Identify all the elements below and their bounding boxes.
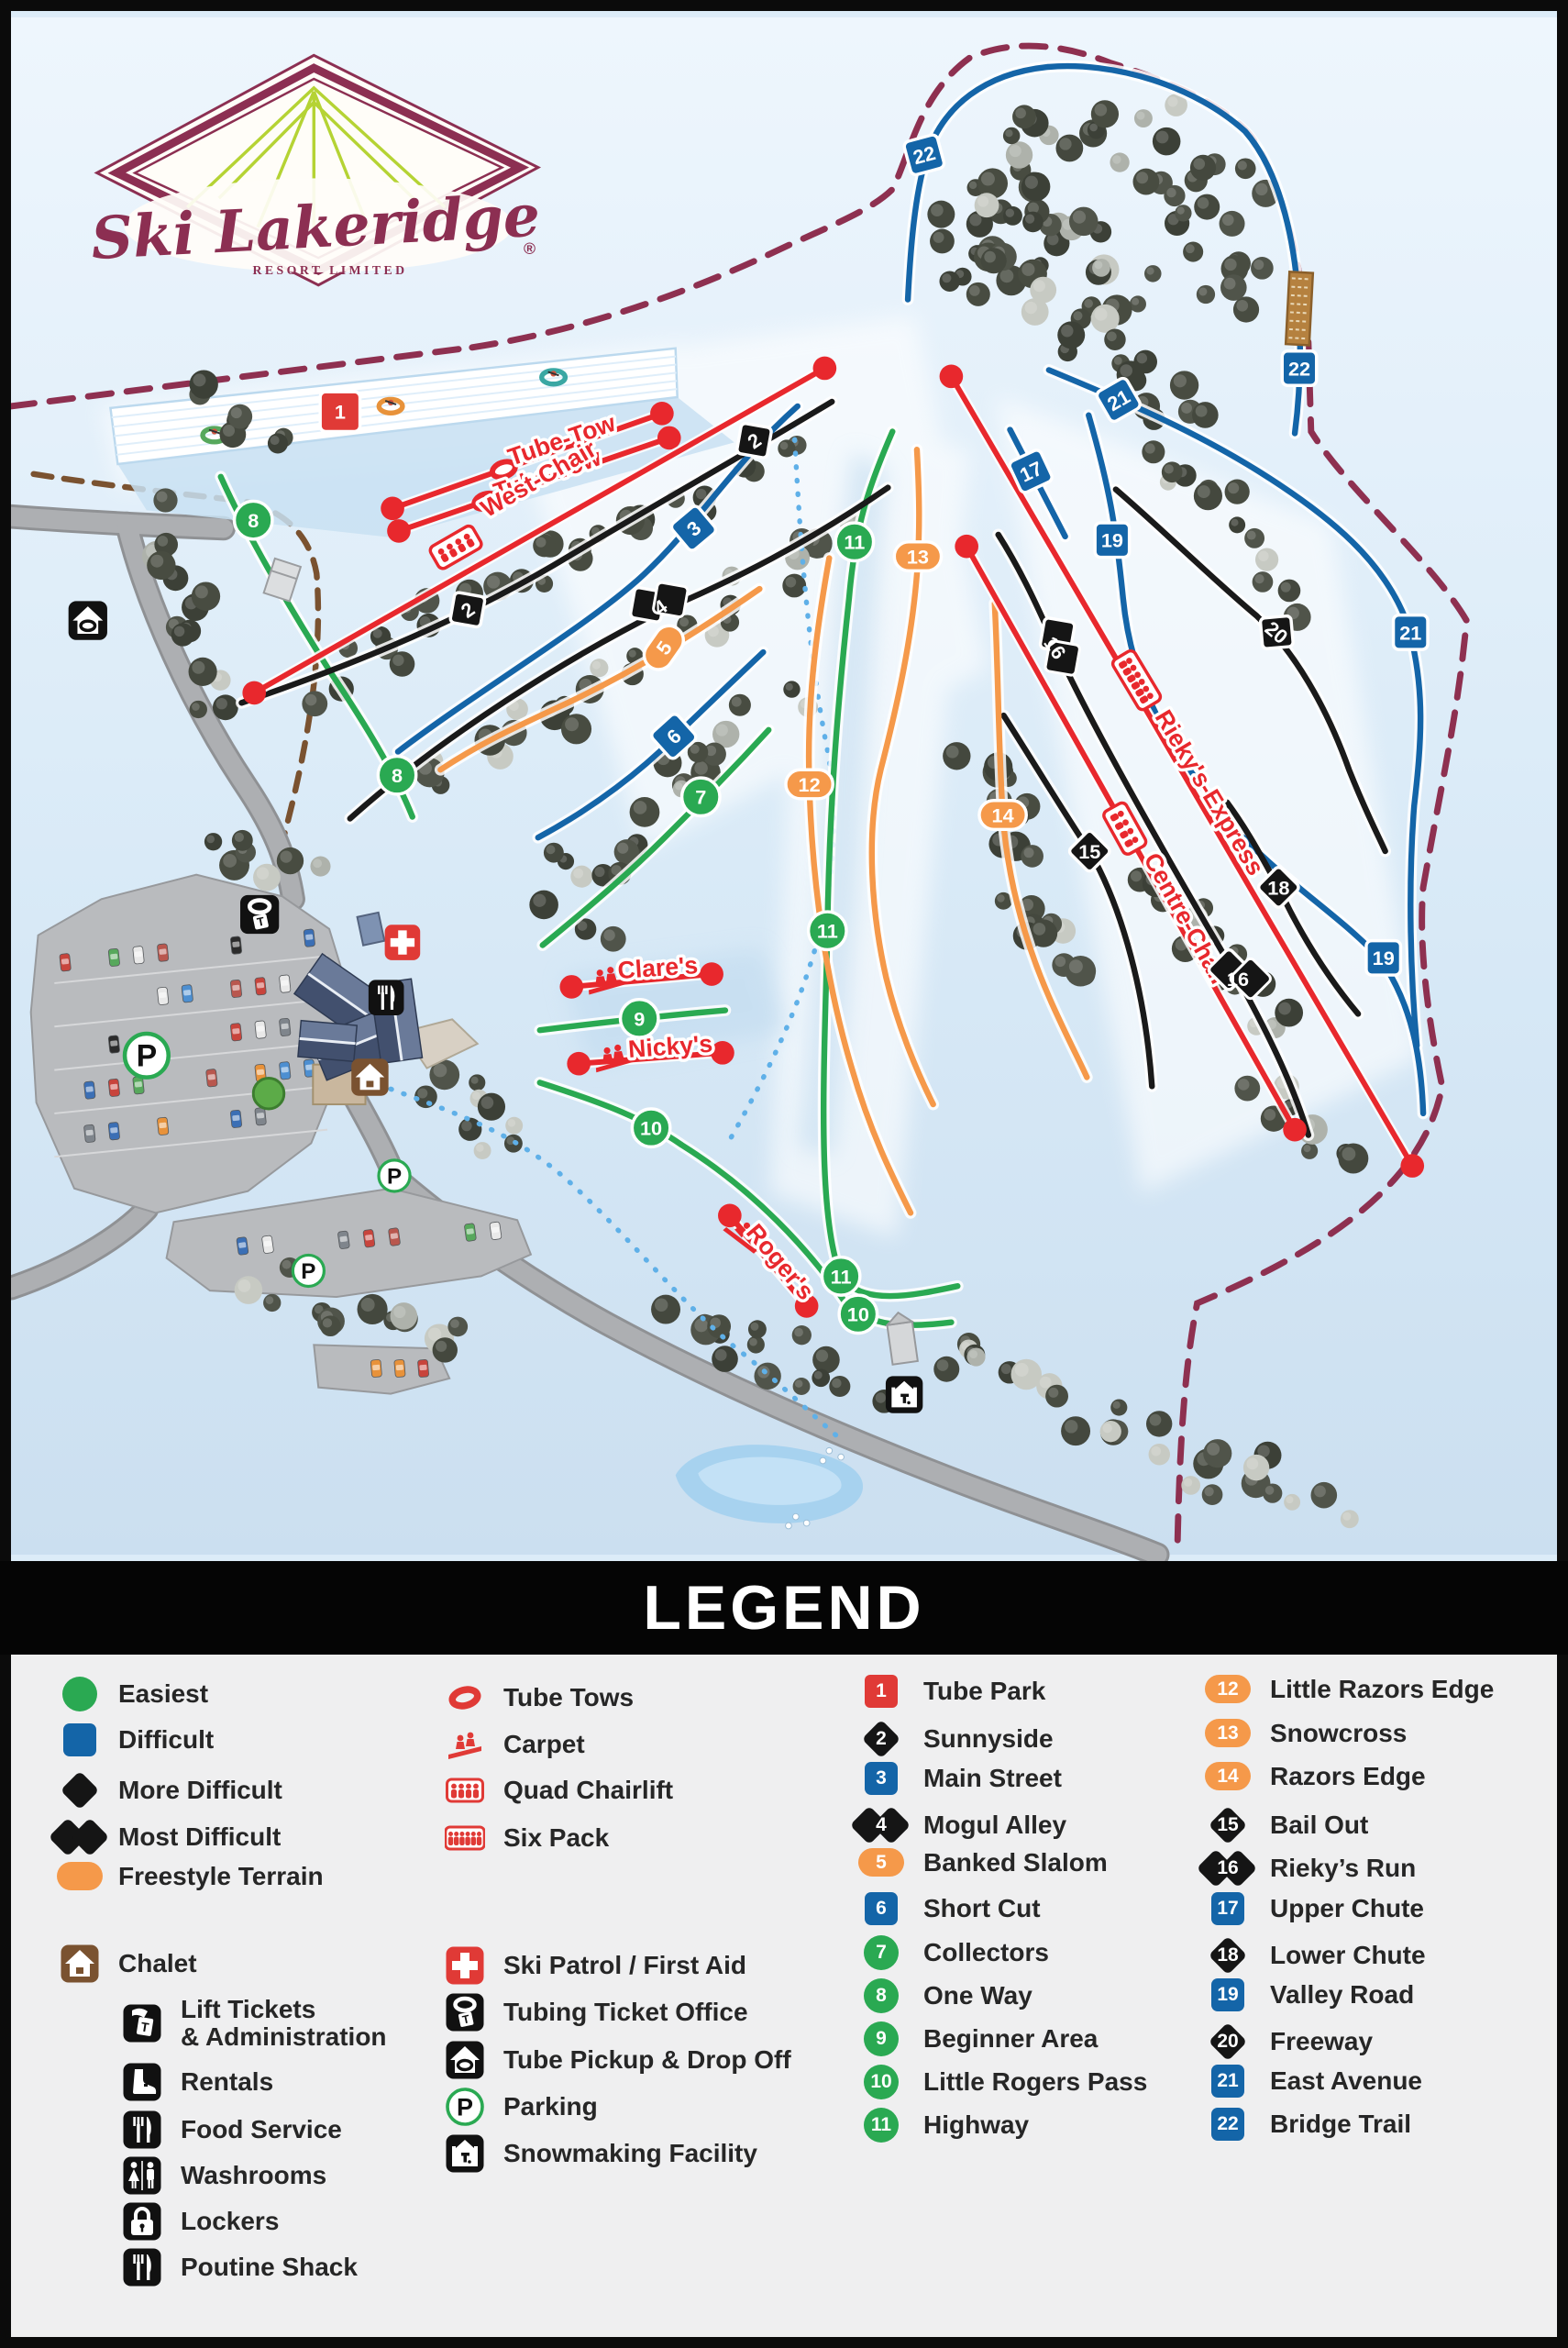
legend-item-tube-pickup-drop-off: Tube Pickup & Drop Off xyxy=(442,2040,791,2080)
svg-text:1: 1 xyxy=(335,401,346,424)
legend-item-easiest: Easiest xyxy=(57,1677,208,1711)
legend-banner: LEGEND xyxy=(0,1561,1568,1655)
legend-item-trail-15: 15 Bail Out xyxy=(1201,1805,1368,1845)
legend-item-most-difficult: Most Difficult xyxy=(57,1817,281,1857)
svg-text:11: 11 xyxy=(817,920,838,943)
legend-item-freestyle-terrain-label: Freestyle Terrain xyxy=(118,1863,324,1890)
legend-item-trail-1-icon: 1 xyxy=(855,1675,908,1708)
svg-text:10: 10 xyxy=(640,1117,662,1140)
trail-marker-12: 12 xyxy=(786,770,833,799)
trail-marker-22: 22 xyxy=(1282,351,1316,385)
svg-text:13: 13 xyxy=(907,545,929,568)
legend-item-trail-15-icon: 15 xyxy=(1201,1805,1254,1845)
legend-item-snowmaking-facility-icon xyxy=(442,2133,488,2174)
legend-item-easiest-icon xyxy=(57,1677,103,1711)
legend-item-trail-17: 17 Upper Chute xyxy=(1201,1892,1424,1925)
legend-item-freestyle-terrain: Freestyle Terrain xyxy=(57,1862,324,1890)
legend-item-difficult-icon xyxy=(57,1723,103,1756)
legend-item-trail-12: 12 Little Razors Edge xyxy=(1201,1675,1494,1703)
legend-item-trail-9: 9 Beginner Area xyxy=(855,2021,1098,2056)
legend-item-trail-5-icon: 5 xyxy=(855,1848,908,1877)
legend-item-trail-10-label: Little Rogers Pass xyxy=(923,2068,1147,2096)
legend-item-rentals-label: Rentals xyxy=(181,2068,273,2096)
trail-marker-19: 19 xyxy=(1095,523,1129,557)
legend-item-trail-14: 14 Razors Edge xyxy=(1201,1762,1426,1790)
legend-item-chalet-icon xyxy=(57,1944,103,1984)
legend-item-trail-20-label: Freeway xyxy=(1270,2028,1373,2055)
legend-item-trail-12-label: Little Razors Edge xyxy=(1270,1676,1494,1703)
svg-text:P: P xyxy=(387,1164,402,1189)
svg-text:10: 10 xyxy=(847,1303,869,1326)
svg-text:P: P xyxy=(137,1039,158,1074)
legend-item-trail-19: 19 Valley Road xyxy=(1201,1978,1414,2011)
legend-item-trail-21-icon: 21 xyxy=(1201,2065,1254,2098)
legend-item-parking-icon: P xyxy=(442,2087,488,2127)
svg-text:9: 9 xyxy=(634,1007,645,1030)
legend-item-trail-5: 5 Banked Slalom xyxy=(855,1848,1108,1877)
legend-item-trail-4: 4 Mogul Alley xyxy=(855,1805,1066,1845)
svg-text:P: P xyxy=(301,1259,315,1284)
legend-item-trail-7-icon: 7 xyxy=(855,1935,908,1970)
legend-item-parking-label: Parking xyxy=(503,2093,598,2121)
legend-item-trail-16-label: Rieky’s Run xyxy=(1270,1855,1416,1882)
legend-item-more-difficult: More Difficult xyxy=(57,1770,282,1811)
legend-item-trail-14-icon: 14 xyxy=(1201,1762,1254,1790)
legend-item-tube-tows: Tube Tows xyxy=(442,1678,634,1718)
legend-item-trail-21-label: East Avenue xyxy=(1270,2067,1422,2095)
legend-item-trail-13: 13 Snowcross xyxy=(1201,1719,1407,1747)
legend-item-trail-6-icon: 6 xyxy=(855,1892,908,1925)
logo-subtitle: RESORT LIMITED xyxy=(252,263,407,277)
trail-marker-19: 19 xyxy=(1366,941,1400,975)
food-map-icon xyxy=(369,980,404,1015)
legend-item-trail-18-icon: 18 xyxy=(1201,1935,1254,1976)
legend-title: LEGEND xyxy=(643,1572,924,1644)
legend-item-trail-2-icon: 2 xyxy=(855,1719,908,1759)
svg-text:19: 19 xyxy=(1373,947,1395,969)
trail-marker-8: 8 xyxy=(378,756,415,793)
svg-text:18: 18 xyxy=(1267,876,1289,899)
legend-item-six-pack-label: Six Pack xyxy=(503,1824,609,1852)
legend-item-ski-patrol-first-aid-icon xyxy=(442,1945,488,1986)
legend-item-trail-1-label: Tube Park xyxy=(923,1678,1045,1705)
legend-item-poutine-shack-label: Poutine Shack xyxy=(181,2254,358,2281)
legend-item-trail-16: 16 Rieky’s Run xyxy=(1201,1848,1416,1888)
logo-registered: ® xyxy=(524,239,536,258)
legend-item-trail-13-icon: 13 xyxy=(1201,1719,1254,1747)
trail-map-poster: Tube-TowTube-TowWest-ChairRieky's-Expres… xyxy=(0,0,1568,2348)
svg-text:12: 12 xyxy=(799,773,821,796)
trail-marker-8: 8 xyxy=(235,501,272,538)
svg-text:11: 11 xyxy=(844,531,865,554)
legend-item-trail-22-icon: 22 xyxy=(1201,2108,1254,2141)
legend-item-trail-19-icon: 19 xyxy=(1201,1978,1254,2011)
legend-item-trail-21: 21 East Avenue xyxy=(1201,2065,1422,2098)
legend-item-easiest-label: Easiest xyxy=(118,1680,208,1708)
legend-item-trail-9-icon: 9 xyxy=(855,2021,908,2056)
trail-marker-7: 7 xyxy=(682,778,720,815)
legend-item-trail-8-icon: 8 xyxy=(855,1978,908,2013)
ski-patrol-map-icon xyxy=(385,925,421,960)
legend-item-rentals-icon xyxy=(119,2062,165,2102)
legend-item-ski-patrol-first-aid: Ski Patrol / First Aid xyxy=(442,1945,746,1986)
legend-item-tube-pickup-drop-off-icon xyxy=(442,2040,488,2080)
legend-item-trail-11: 11 Highway xyxy=(855,2108,1029,2143)
legend-item-trail-20-icon: 20 xyxy=(1201,2021,1254,2062)
legend-item-lockers-icon xyxy=(119,2201,165,2242)
legend-item-trail-20: 20 Freeway xyxy=(1201,2021,1373,2062)
legend-item-trail-16-icon: 16 xyxy=(1201,1848,1254,1888)
legend-item-trail-22-label: Bridge Trail xyxy=(1270,2110,1411,2138)
legend-item-ski-patrol-first-aid-label: Ski Patrol / First Aid xyxy=(503,1952,746,1979)
legend-item-trail-5-label: Banked Slalom xyxy=(923,1849,1108,1877)
legend-item-trail-10-icon: 10 xyxy=(855,2065,908,2099)
legend-item-six-pack-icon xyxy=(442,1818,488,1858)
svg-text:15: 15 xyxy=(1078,840,1100,863)
legend-item-trail-1: 1 Tube Park xyxy=(855,1675,1045,1708)
legend-item-rentals: Rentals xyxy=(119,2062,273,2102)
svg-text:16: 16 xyxy=(1227,968,1249,991)
legend-item-trail-4-icon: 4 xyxy=(855,1805,908,1845)
trail-map: Tube-TowTube-TowWest-ChairRieky's-Expres… xyxy=(11,11,1557,1561)
legend-item-quad-chairlift-label: Quad Chairlift xyxy=(503,1777,673,1804)
legend-item-freestyle-terrain-icon xyxy=(57,1862,103,1890)
legend-item-trail-15-label: Bail Out xyxy=(1270,1811,1368,1839)
legend-item-trail-6: 6 Short Cut xyxy=(855,1892,1041,1925)
svg-text:7: 7 xyxy=(695,786,706,809)
legend-item-washrooms-icon xyxy=(119,2155,165,2196)
chalet-map-icon xyxy=(351,1058,388,1095)
legend-item-trail-10: 10 Little Rogers Pass xyxy=(855,2065,1147,2099)
legend-item-quad-chairlift-icon xyxy=(442,1770,488,1811)
legend-item-tube-tows-label: Tube Tows xyxy=(503,1684,634,1711)
legend-item-snowmaking-facility-label: Snowmaking Facility xyxy=(503,2140,757,2167)
legend-item-parking: P Parking xyxy=(442,2087,598,2127)
legend-item-poutine-shack: Poutine Shack xyxy=(119,2247,358,2287)
bridge-icon xyxy=(1286,271,1313,345)
svg-text:19: 19 xyxy=(1101,529,1123,552)
legend-item-most-difficult-icon xyxy=(57,1817,103,1857)
trail-marker-14: 14 xyxy=(979,801,1026,830)
legend-item-washrooms: Washrooms xyxy=(119,2155,326,2196)
svg-text:8: 8 xyxy=(392,764,403,787)
legend-item-trail-18: 18 Lower Chute xyxy=(1201,1935,1426,1976)
legend-item-trail-11-label: Highway xyxy=(923,2111,1029,2139)
trail-marker-10: 10 xyxy=(632,1109,669,1146)
legend-item-trail-8: 8 One Way xyxy=(855,1978,1032,2013)
legend-item-trail-17-icon: 17 xyxy=(1201,1892,1254,1925)
legend-item-more-difficult-icon xyxy=(57,1770,103,1811)
legend-item-most-difficult-label: Most Difficult xyxy=(118,1823,281,1851)
legend-item-trail-2-label: Sunnyside xyxy=(923,1725,1054,1753)
legend-item-trail-6-label: Short Cut xyxy=(923,1895,1041,1922)
trail-marker-10: 10 xyxy=(839,1295,877,1333)
legend-item-trail-17-label: Upper Chute xyxy=(1270,1895,1424,1922)
legend-item-trail-22: 22 Bridge Trail xyxy=(1201,2108,1411,2141)
legend-item-trail-19-label: Valley Road xyxy=(1270,1981,1414,2009)
tube-pickup-map-icon xyxy=(69,601,107,639)
trail-marker-1: 1 xyxy=(320,392,359,431)
legend-item-tube-pickup-drop-off-label: Tube Pickup & Drop Off xyxy=(503,2046,791,2074)
legend-item-lockers: Lockers xyxy=(119,2201,279,2242)
legend-item-chalet: Chalet xyxy=(57,1944,197,1984)
legend-item-tubing-ticket-office-icon: T xyxy=(442,1992,488,2032)
legend-item-trail-12-icon: 12 xyxy=(1201,1675,1254,1703)
legend-item-trail-11-icon: 11 xyxy=(855,2108,908,2143)
legend-item-trail-14-label: Razors Edge xyxy=(1270,1763,1426,1790)
legend-item-trail-18-label: Lower Chute xyxy=(1270,1942,1426,1969)
lift-label: Clare's xyxy=(617,951,700,984)
legend-item-carpet: Carpet xyxy=(442,1724,585,1765)
trail-map-svg: Tube-TowTube-TowWest-ChairRieky's-Expres… xyxy=(11,11,1557,1561)
legend-item-trail-4-label: Mogul Alley xyxy=(923,1811,1066,1839)
svg-text:14: 14 xyxy=(992,803,1014,826)
legend-item-six-pack: Six Pack xyxy=(442,1818,609,1858)
parking-map-icon: P xyxy=(293,1255,324,1286)
legend-item-snowmaking-facility: Snowmaking Facility xyxy=(442,2133,757,2174)
legend-item-food-service: Food Service xyxy=(119,2110,342,2150)
legend-item-poutine-shack-icon xyxy=(119,2247,165,2287)
tubing-ticket-map-icon: T xyxy=(240,895,279,934)
legend-item-chalet-label: Chalet xyxy=(118,1950,197,1977)
trail-marker-11: 11 xyxy=(835,523,873,560)
trail-marker-11: 11 xyxy=(822,1257,859,1295)
legend-item-lift-tickets: T Lift Tickets& Administration xyxy=(119,1996,387,2051)
legend-item-lockers-label: Lockers xyxy=(181,2208,279,2235)
legend-item-trail-13-label: Snowcross xyxy=(1270,1720,1407,1747)
snowmaking-map-icon xyxy=(886,1376,922,1412)
trail-marker-13: 13 xyxy=(894,542,941,571)
legend: Easiest Difficult More Difficult Most Di… xyxy=(11,1655,1557,2337)
svg-text:21: 21 xyxy=(1399,621,1421,644)
legend-item-tubing-ticket-office: T Tubing Ticket Office xyxy=(442,1992,748,2032)
lawn-tree xyxy=(253,1078,284,1109)
svg-text:11: 11 xyxy=(831,1265,852,1288)
legend-item-trail-8-label: One Way xyxy=(923,1982,1032,2010)
svg-text:8: 8 xyxy=(248,509,259,532)
legend-item-quad-chairlift: Quad Chairlift xyxy=(442,1770,673,1811)
svg-text:22: 22 xyxy=(1288,357,1310,380)
legend-item-washrooms-label: Washrooms xyxy=(181,2162,326,2189)
trail-marker-21: 21 xyxy=(1394,615,1428,649)
parking-map-icon: P xyxy=(125,1034,169,1078)
legend-item-difficult: Difficult xyxy=(57,1723,214,1756)
legend-item-trail-3-icon: 3 xyxy=(855,1762,908,1795)
trail-marker-22: 22 xyxy=(903,134,945,176)
legend-item-food-service-label: Food Service xyxy=(181,2116,342,2143)
legend-item-tubing-ticket-office-label: Tubing Ticket Office xyxy=(503,1999,748,2026)
legend-item-trail-3-label: Main Street xyxy=(923,1765,1062,1792)
parking-map-icon: P xyxy=(379,1160,410,1191)
legend-item-trail-7-label: Collectors xyxy=(923,1939,1049,1966)
legend-item-more-difficult-label: More Difficult xyxy=(118,1777,282,1804)
svg-text:P: P xyxy=(457,2094,473,2121)
legend-item-trail-2: 2 Sunnyside xyxy=(855,1719,1054,1759)
trail-marker-9: 9 xyxy=(621,1000,658,1037)
legend-item-tube-tows-icon xyxy=(442,1678,488,1718)
legend-item-lift-tickets-icon: T xyxy=(119,2003,165,2043)
legend-item-carpet-label: Carpet xyxy=(503,1731,585,1758)
legend-item-food-service-icon xyxy=(119,2110,165,2150)
legend-item-difficult-label: Difficult xyxy=(118,1726,214,1754)
trail-marker-11: 11 xyxy=(809,912,846,949)
legend-item-trail-7: 7 Collectors xyxy=(855,1935,1049,1970)
legend-item-lift-tickets-label: Lift Tickets& Administration xyxy=(181,1996,387,2051)
legend-item-carpet-icon xyxy=(442,1724,488,1765)
legend-item-trail-3: 3 Main Street xyxy=(855,1762,1062,1795)
legend-item-trail-9-label: Beginner Area xyxy=(923,2025,1098,2053)
